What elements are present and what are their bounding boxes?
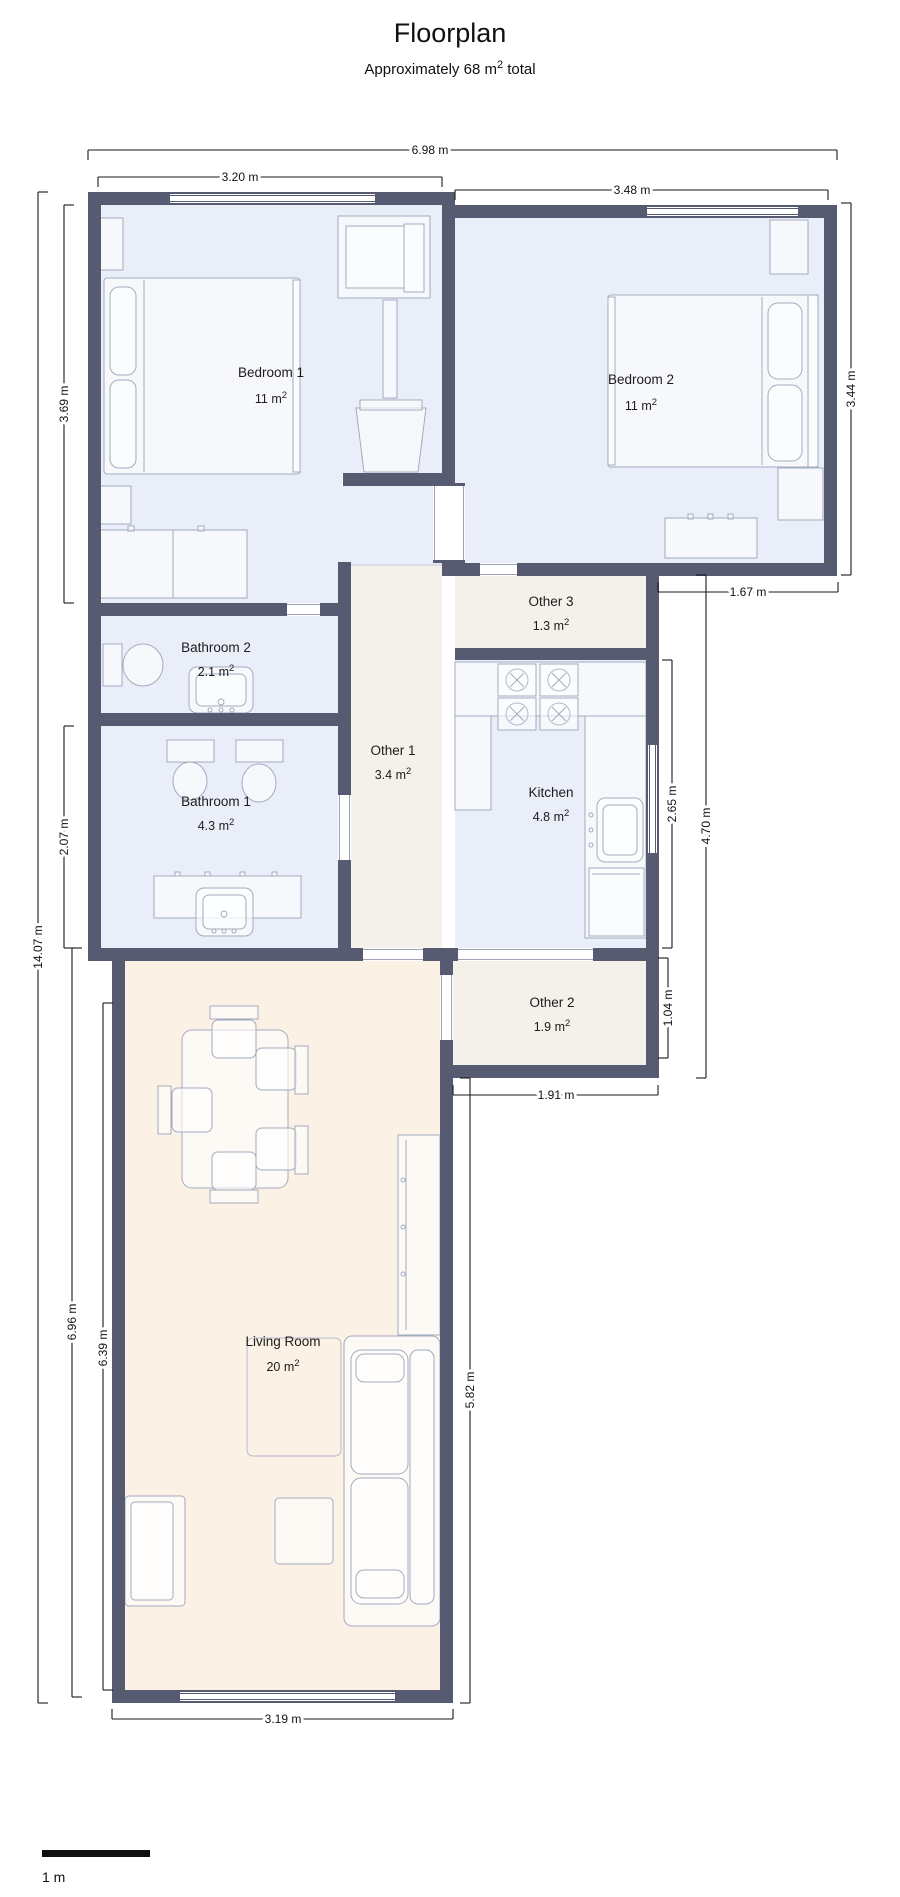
bathroom1-faucet-dot-2 [222,929,226,933]
bedroom2-dresser-knob-2 [708,514,713,519]
svg-text:6.98 m: 6.98 m [412,143,449,157]
bathroom1-faucet-dot-3 [232,929,236,933]
kitchen-area: 4.8 m2 [533,808,570,824]
bathroom2-toilet-bowl [123,644,163,686]
svg-text:6.39 m: 6.39 m [96,1330,110,1367]
shelf-knob [401,1178,405,1182]
bathroom2-faucet [218,699,224,705]
bedroom2-dresser-knob [688,514,693,519]
other3-label: Other 3 [528,594,573,609]
bedroom1-desk [383,300,397,398]
svg-text:1.91 m: 1.91 m [538,1088,575,1102]
chair-top-seat [212,1020,256,1058]
svg-text:6.96 m: 6.96 m [65,1304,79,1341]
svg-text:14.07 m: 14.07 m [31,925,45,968]
page-title: Floorplan [394,18,507,48]
bathroom1-counter-tick-3 [240,872,245,876]
wall-segment [112,948,125,1703]
other2-floor [453,961,646,1065]
kitchen-label: Kitchen [528,785,573,800]
livingroom-shelf-unit [398,1135,440,1335]
svg-text:1.67 m: 1.67 m [730,585,767,599]
chair-right2-seat [256,1128,296,1170]
shelf-knob-3 [401,1272,405,1276]
page-subtitle: Approximately 68 m2 total [364,59,535,78]
chair-right2-back [295,1126,308,1174]
svg-text:3.20 m: 3.20 m [222,170,259,184]
bedroom2-pillow-2 [768,385,802,461]
chair-bottom-back [210,1190,258,1203]
bedroom1-loveseat-cushion [346,226,404,288]
bathroom1-toilet-tank [167,740,214,762]
door-other2 [440,972,453,1043]
kitchen-faucet-dot-3 [589,843,593,847]
door-nook-bedroom2 [433,483,465,563]
shelf-knob-2 [401,1225,405,1229]
svg-text:2.07 m: 2.07 m [57,819,71,856]
wall-segment [338,562,351,948]
bedroom2-dresser [665,518,757,558]
other3-floor [455,576,646,648]
bedroom2-bed-headboard [808,295,818,467]
bedroom1-pillow-1 [110,287,136,375]
bathroom2-area: 2.1 m2 [198,663,235,679]
chair-right1-seat [256,1048,296,1090]
bathroom2-faucet-dot-2 [219,708,223,712]
svg-text:3.48 m: 3.48 m [614,183,651,197]
kitchen-oven [455,716,491,810]
other2-label: Other 2 [529,995,574,1010]
kitchen-appliance [589,868,644,936]
bathroom1-bidet-tank [236,740,283,762]
svg-text:5.82 m: 5.82 m [463,1372,477,1409]
livingroom-coffee-table [275,1498,333,1564]
bedroom1-chair-back [360,400,422,410]
bathroom1-label: Bathroom 1 [181,794,251,809]
bedroom1-wardrobe-knob [128,526,134,531]
bedroom1-nightstand-2 [99,486,131,524]
bathroom1-faucet [221,911,227,917]
chair-right1-back [295,1046,308,1094]
bedroom1-label: Bedroom 1 [238,365,304,380]
bedroom2-label: Bedroom 2 [608,372,674,387]
livingroom-sofa [344,1336,440,1626]
door-other1-livingroom [360,948,426,961]
kitchen-faucet-dot [589,813,593,817]
wall-segment [442,205,455,473]
wall-exterior-left [88,192,101,961]
bathroom1-counter-tick [175,872,180,876]
scale-bar-rule [42,1850,150,1857]
bedroom1-wardrobe-knob-2 [198,526,204,531]
kitchen-faucet-dot-2 [589,828,593,832]
wall-segment [440,1065,659,1078]
svg-text:3.44 m: 3.44 m [844,371,858,408]
bathroom2-faucet-dot [208,708,212,712]
svg-text:3.69 m: 3.69 m [57,386,71,423]
other2-area: 1.9 m2 [534,1018,571,1034]
chair-left-seat [172,1088,212,1132]
livingroom-label: Living Room [245,1334,320,1349]
other1-label: Other 1 [370,743,415,758]
bedroom1-loveseat-armrest [404,224,424,292]
bathroom2-faucet-dot-3 [230,708,234,712]
bathroom1-counter-tick-4 [272,872,277,876]
door-bedroom2-other3 [477,563,520,576]
chair-top-back [210,1006,258,1019]
bathroom2-label: Bathroom 2 [181,640,251,655]
bedroom1-pillow-2 [110,380,136,468]
kitchen-sink-basin [603,805,637,855]
other1-area: 3.4 m2 [375,766,412,782]
bathroom1-faucet-dot [212,929,216,933]
scale-bar-label: 1 m [42,1869,65,1885]
chair-left-back [158,1086,171,1134]
bedroom1-nightstand [99,218,123,270]
bedroom2-pillow-1 [768,303,802,379]
bedroom2-nightstand [770,220,808,274]
bathroom1-area: 4.3 m2 [198,817,235,833]
wall-exterior-right [824,205,837,576]
wall-segment [88,713,351,726]
bedroom2-nightstand-2 [778,468,823,520]
wall-segment [455,648,659,660]
svg-text:1.04 m: 1.04 m [661,990,675,1027]
bedroom1-chair [356,408,426,472]
bedroom1-nook-floor [342,486,442,565]
svg-text:3.19 m: 3.19 m [265,1712,302,1726]
bedroom2-dresser-knob-3 [728,514,733,519]
opening-kitchen-other2 [455,948,596,961]
floorplan: Floorplan Approximately 68 m2 total [0,0,900,1897]
bathroom2-toilet-tank [103,644,122,686]
door-bathroom1 [338,792,351,863]
svg-text:4.70 m: 4.70 m [699,808,713,845]
wall-segment [440,1078,453,1703]
chair-bottom-seat [212,1152,256,1190]
other3-area: 1.3 m2 [533,617,570,633]
door-bedroom1-bathroom2 [284,603,323,616]
svg-text:2.65 m: 2.65 m [665,786,679,823]
bathroom1-counter-tick-2 [205,872,210,876]
livingroom-armchair-cushion [131,1502,173,1600]
